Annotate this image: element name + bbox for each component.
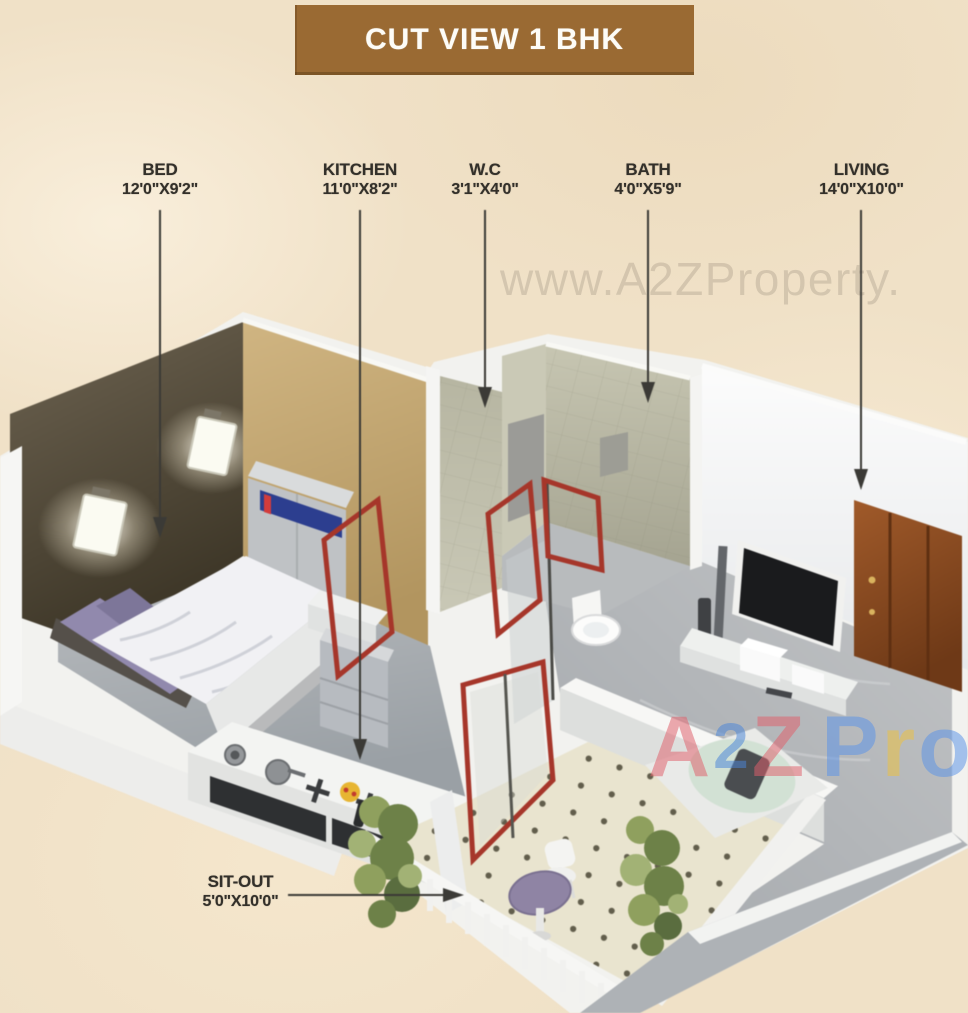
- room-dimensions: 11'0"X8'2": [290, 180, 430, 200]
- floor-plan-image: www.A2ZProperty.: [0, 0, 968, 1013]
- wc-mirror: [508, 414, 544, 522]
- room-dimensions: 4'0"X5'9": [583, 180, 713, 200]
- watermark-logo-colored: A2ZProp: [648, 704, 968, 790]
- watermark-letter: o: [918, 699, 968, 795]
- room-name: W.C: [420, 160, 550, 180]
- watermark-letter: Z: [752, 699, 808, 795]
- wall-lamp-left: [38, 478, 162, 578]
- room-dimensions: 12'0"X9'2": [95, 180, 225, 200]
- room-dimensions: 5'0"X10'0": [158, 892, 323, 912]
- apartment-3d-render: [0, 0, 968, 1013]
- pan: [266, 760, 290, 784]
- room-dimensions: 3'1"X4'0": [420, 180, 550, 200]
- fruit-bowl: [340, 782, 360, 802]
- room-label-sitout: SIT-OUT 5'0"X10'0": [158, 872, 323, 912]
- watermark-letter: A: [648, 699, 713, 795]
- room-label-bath: BATH 4'0"X5'9": [583, 160, 713, 200]
- room-label-kitchen: KITCHEN 11'0"X8'2": [290, 160, 430, 200]
- watermark-letter: r: [882, 699, 918, 795]
- room-name: KITCHEN: [290, 160, 430, 180]
- watermark-letter: P: [821, 699, 881, 795]
- door-handle: [869, 577, 876, 584]
- page-title: CUT VIEW 1 BHK: [365, 23, 624, 57]
- room-label-living: LIVING 14'0"X10'0": [794, 160, 929, 200]
- room-dimensions: 14'0"X10'0": [794, 180, 929, 200]
- title-banner: CUT VIEW 1 BHK: [295, 5, 694, 75]
- room-name: SIT-OUT: [158, 872, 323, 892]
- room-label-bed: BED 12'0"X9'2": [95, 160, 225, 200]
- room-name: BATH: [583, 160, 713, 180]
- bath-niche: [600, 432, 628, 477]
- room-label-wc: W.C 3'1"X4'0": [420, 160, 550, 200]
- room-name: BED: [95, 160, 225, 180]
- room-name: LIVING: [794, 160, 929, 180]
- watermark-letter: 2: [713, 710, 752, 782]
